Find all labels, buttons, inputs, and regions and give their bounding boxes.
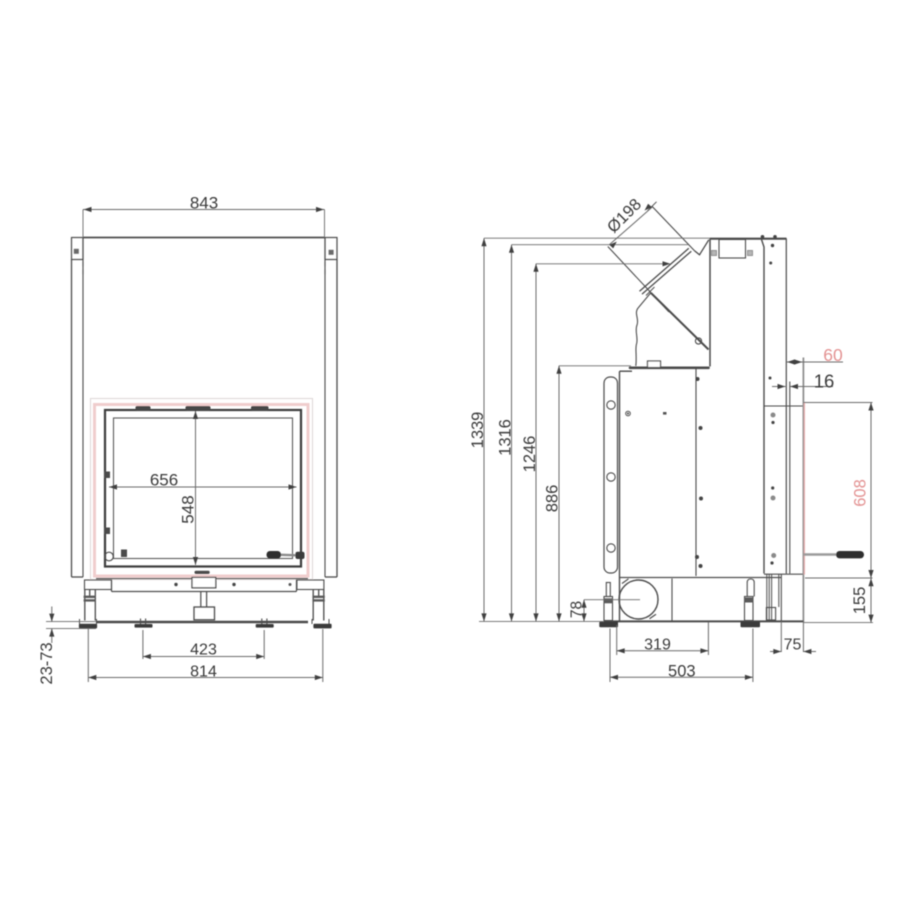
svg-text:155: 155 bbox=[851, 587, 869, 615]
svg-text:1246: 1246 bbox=[521, 436, 539, 473]
svg-text:60: 60 bbox=[823, 345, 843, 365]
svg-text:16: 16 bbox=[814, 371, 835, 392]
svg-text:814: 814 bbox=[190, 663, 217, 680]
svg-text:23-73: 23-73 bbox=[38, 642, 56, 684]
svg-text:548: 548 bbox=[179, 495, 198, 523]
svg-text:608: 608 bbox=[852, 479, 870, 507]
svg-text:1316: 1316 bbox=[497, 419, 515, 456]
svg-text:319: 319 bbox=[644, 636, 671, 653]
svg-text:423: 423 bbox=[190, 642, 217, 659]
svg-text:78: 78 bbox=[569, 601, 586, 618]
svg-text:75: 75 bbox=[784, 637, 802, 654]
svg-text:503: 503 bbox=[668, 662, 696, 680]
svg-text:886: 886 bbox=[544, 485, 562, 513]
svg-text:656: 656 bbox=[150, 470, 178, 489]
svg-text:1339: 1339 bbox=[469, 412, 487, 449]
svg-text:843: 843 bbox=[190, 194, 218, 213]
